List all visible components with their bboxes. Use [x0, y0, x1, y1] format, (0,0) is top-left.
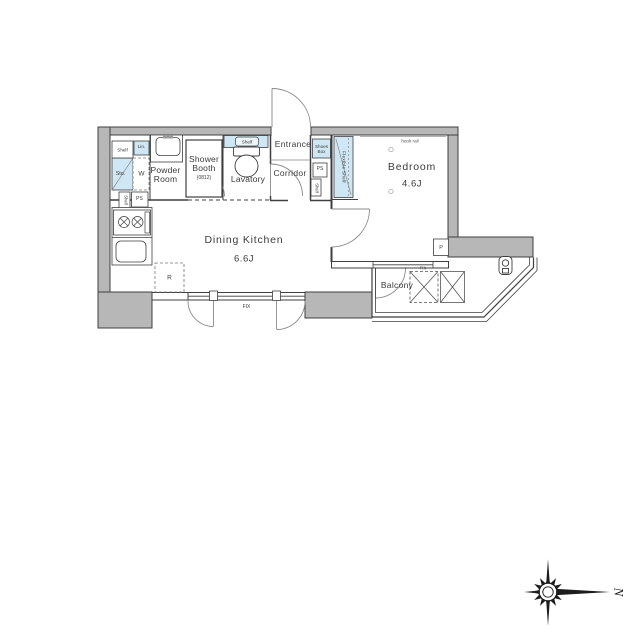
dk-window-hinge-right: [273, 291, 281, 301]
washer-label: W: [138, 170, 144, 177]
fix-balcony-label: FIX: [420, 267, 427, 272]
hook-rail-label: hook rail: [401, 138, 418, 143]
pipe-label: P: [439, 244, 443, 250]
ps-label-right: PS: [317, 167, 324, 173]
floorplan-canvas: Dining Kitchen 6.6J Bedroom 4.6J Entranc…: [0, 0, 640, 640]
bedroom-door-swing: [332, 209, 370, 247]
shelf-label-top-left: Shelf: [117, 147, 127, 152]
powder-room-label: Powder Room: [150, 166, 180, 186]
kitchen-counter: [112, 208, 152, 266]
balcony-panels: [410, 272, 465, 303]
flexible-shelf-label: Flexible Shelf: [341, 151, 346, 183]
right-wall: [448, 135, 458, 237]
shelf-label-vert-left: Shelf: [122, 195, 127, 205]
compass-north-label: N: [610, 587, 625, 596]
corridor-label: Corridor: [273, 169, 306, 179]
bottom-left-wall-block: [98, 292, 152, 328]
linen-label: Lin.: [138, 145, 146, 151]
dk-window-right-swing: [277, 300, 306, 330]
entrance-door-swing: [272, 89, 311, 128]
refrigerator-label: R: [167, 274, 172, 281]
bottom-mid-wall-block: [305, 292, 372, 318]
shower-booth-size: (0812): [197, 176, 211, 182]
entrance-doorway: [271, 126, 311, 136]
fix-window-label: FIX: [243, 305, 251, 311]
toilet-icon: [234, 147, 260, 177]
faucet-icon: [499, 257, 512, 275]
dining-kitchen-size: 6.6J: [234, 255, 254, 266]
toilet-shelf-label: Shelf: [242, 139, 252, 144]
kitchen-sink-icon: [116, 241, 146, 262]
dining-kitchen-label: Dining Kitchen: [205, 234, 284, 246]
ps-label-left: PS: [136, 197, 143, 203]
storage-label: Sto.: [116, 170, 126, 176]
floorplan-drawing: [0, 0, 640, 640]
shelf-label-vert-right: Shelf: [314, 183, 319, 193]
bedroom-size: 4.6J: [402, 180, 422, 191]
shoes-box-label: Shoes Box: [315, 143, 328, 153]
dk-window-hinge-left: [210, 291, 218, 301]
right-wall-band: [448, 237, 533, 257]
shower-booth-label: Shower Booth: [189, 155, 219, 175]
dk-bottom-wall-segment: [152, 293, 188, 301]
bedroom-label: Bedroom: [388, 161, 436, 173]
lavatory-label: Lavatory: [231, 175, 265, 185]
washbasin-icon: [151, 135, 183, 162]
compass-rose: [524, 559, 610, 626]
entrance-label: Entrance: [275, 140, 311, 150]
balcony-label: Balcony: [381, 281, 413, 291]
dk-window-left-swing: [188, 300, 214, 327]
left-wall: [98, 127, 110, 292]
